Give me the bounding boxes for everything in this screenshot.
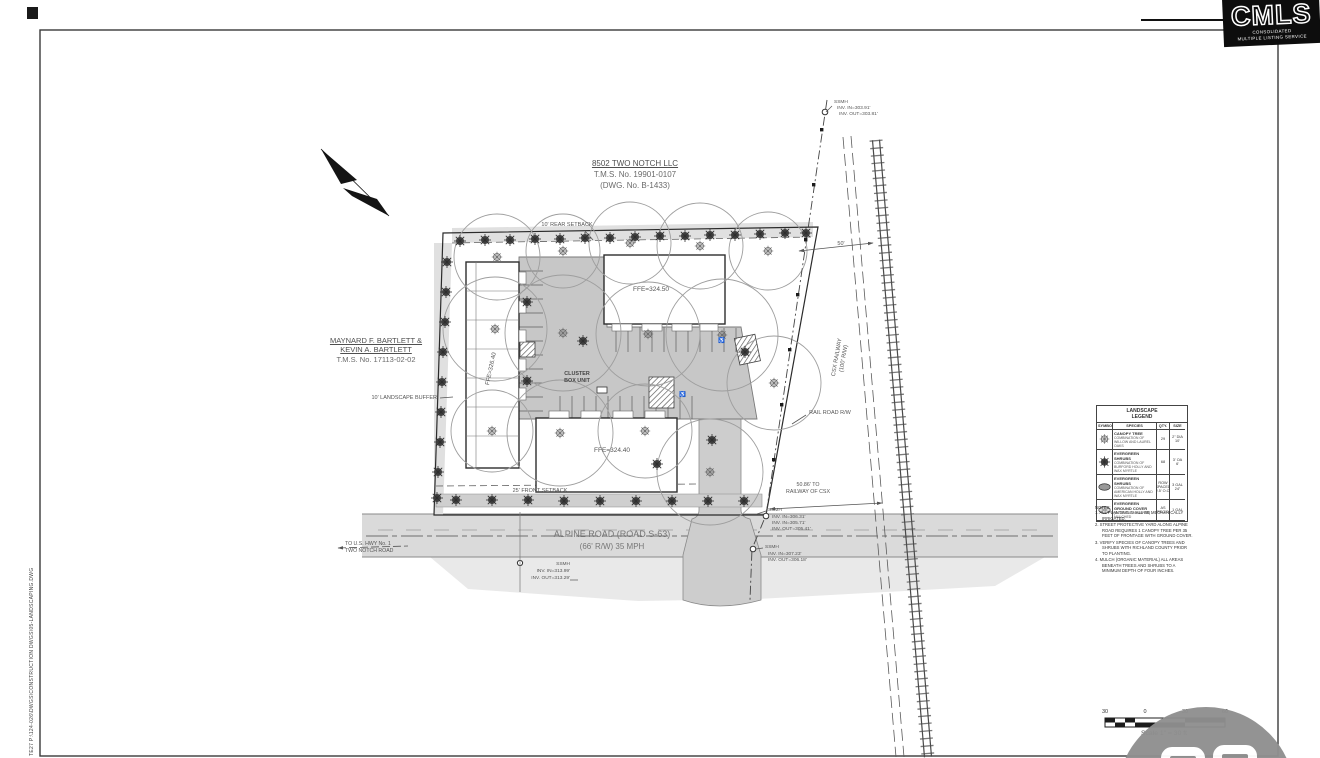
- ssmh-west-inv2: INV. OUT=313.29': [531, 576, 570, 582]
- watermark-shape: [1161, 747, 1205, 758]
- driveway: [683, 419, 761, 606]
- legend-row-size: 3' OA 6': [1170, 450, 1185, 475]
- parcel-north-name: 8502 TWO NOTCH LLC: [592, 159, 678, 168]
- note-item: 4. MULCH (ORGANIC MATERIAL) ALL AREAS BE…: [1095, 557, 1193, 573]
- note-item: 3. VERIFY SPECIES OF CANOPY TREES AND SH…: [1095, 540, 1193, 556]
- dim-50-label: 50': [837, 241, 844, 247]
- legend-row-size: 2" DIA 10': [1170, 430, 1185, 450]
- road-name-label: ALPINE ROAD (ROAD S-63): [554, 529, 671, 540]
- ffe-upper-label: FFE=324.50: [633, 286, 669, 294]
- ssmh-east-lower-inv1: INV. IN=307.23': [768, 552, 801, 558]
- north-arrow: [321, 149, 389, 216]
- scalebar-tick: 30: [1102, 709, 1108, 715]
- scalebar-tick: 0: [1143, 709, 1146, 715]
- canopy-tree-legend-icon: [1097, 430, 1113, 450]
- railway-distance-label-1: 50.86' TO: [797, 482, 820, 488]
- legend-header-symbol: SYMBOL: [1097, 423, 1113, 430]
- legend-header-size: SIZE: [1170, 423, 1185, 430]
- railroad-rw-label: RAIL ROAD R/W: [809, 410, 851, 416]
- ssmh-east-lower-name: SSMH: [765, 545, 779, 551]
- ssmh-north-inv2: INV. OUT=303.81': [839, 112, 878, 118]
- drawing-file-path: TE27 P:\124-026\DWGS\CONSTRUCTION DWGS\0…: [29, 236, 35, 756]
- front-setback-label: 25' FRONT SETBACK: [513, 488, 568, 494]
- legend-header-qty: QTY.: [1157, 423, 1170, 430]
- evergreen-shrub-legend-icon: [1097, 450, 1113, 475]
- csx-railroad-track: [873, 140, 932, 758]
- parcel-north-dwg: (DWG. No. B-1433): [600, 181, 670, 190]
- legend-row-qty: ROW SPACED 2.5' O.C.: [1157, 475, 1170, 500]
- ffe-lower-label: FFE=324.40: [594, 447, 630, 455]
- site-plan-drawing: [0, 0, 1320, 758]
- scanned-site-plan-sheet: 8502 TWO NOTCH LLC T.M.S. No. 19901-0107…: [0, 0, 1320, 758]
- legend-row-qty: 29: [1157, 430, 1170, 450]
- ssmh-west-inv1: INV. IN=313.99': [537, 569, 570, 575]
- ssmh-north-inv1: INV. IN=303.91': [837, 106, 870, 112]
- legend-row-species: CANOPY TREE COMBINATION OF WILLOW AND LA…: [1113, 430, 1157, 450]
- road-direction-label-1: TO U.S. HWY No. 1: [345, 541, 391, 547]
- parcel-west-name2: KEVIN A. BARTLETT: [340, 346, 412, 355]
- logo-strike-line: [1141, 19, 1231, 21]
- cmls-logo-tagline: CONSOLIDATED MULTIPLE LISTING SERVICE: [1237, 28, 1307, 42]
- ssmh-west-name: SSMH: [556, 562, 570, 568]
- ssmh-east-upper-inv1: INV. IN=306.31': [772, 515, 805, 521]
- cluster-box-label-2: BOX UNIT: [564, 378, 590, 384]
- rear-setback-label: 10' REAR SETBACK: [541, 222, 592, 228]
- ssmh-east-lower-inv2: INV. OUT=306.18': [768, 558, 807, 564]
- handicap-icon: ♿: [718, 338, 725, 344]
- ssmh-east-upper-inv2: INV. IN=305.71': [772, 521, 805, 527]
- legend-row-size: 3 GAL 24": [1170, 475, 1185, 500]
- parcel-north-tms: T.M.S. No. 19901-0107: [594, 170, 676, 179]
- handicap-icon: ♿: [679, 392, 686, 398]
- cluster-box-label-1: CLUSTER: [564, 371, 589, 377]
- note-item: 1. ALL PLANTING SHALL BE MECHANICALLY IR…: [1095, 510, 1193, 521]
- legend-row-species: EVERGREEN SHRUBS COMBINATION OF BURFORD …: [1113, 450, 1157, 475]
- cmls-logo-text: CMLS: [1230, 0, 1312, 30]
- road-direction-label-2: TWO NOTCH ROAD: [345, 548, 393, 554]
- legend-row-qty: 68: [1157, 450, 1170, 475]
- watermark-shape: [1213, 745, 1257, 758]
- ssmh-east-upper-name: SSMH: [768, 508, 782, 514]
- cmls-logo: CMLS CONSOLIDATED MULTIPLE LISTING SERVI…: [1222, 0, 1320, 47]
- legend-row-species: EVERGREEN SHRUBS COMBINATION OF AMERICAN…: [1113, 475, 1157, 500]
- ssmh-north-name: SSMH: [834, 100, 848, 106]
- corner-mark: [27, 7, 38, 19]
- road-details-label: (66' R/W) 35 MPH: [580, 542, 645, 551]
- note-item: 2. STREET PROTECTIVE YARD ALONG ALPINE R…: [1095, 522, 1193, 538]
- plan-notes: NOTES: 1. ALL PLANTING SHALL BE MECHANIC…: [1095, 505, 1193, 574]
- landscape-buffer-label: 10' LANDSCAPE BUFFER: [371, 395, 437, 401]
- cluster-box-symbol: [597, 387, 607, 393]
- ssmh-east-upper-inv3: INV. OUT=305.41': [772, 527, 811, 533]
- parcel-west-tms: T.M.S. No. 17113-02-02: [336, 356, 415, 365]
- railway-distance-label-2: RAILWAY OF CSX: [786, 489, 830, 495]
- legend-title: LANDSCAPE LEGEND: [1097, 406, 1187, 423]
- legend-header-species: SPECIES: [1113, 423, 1157, 430]
- shrub-hedge-legend-icon: [1097, 475, 1113, 500]
